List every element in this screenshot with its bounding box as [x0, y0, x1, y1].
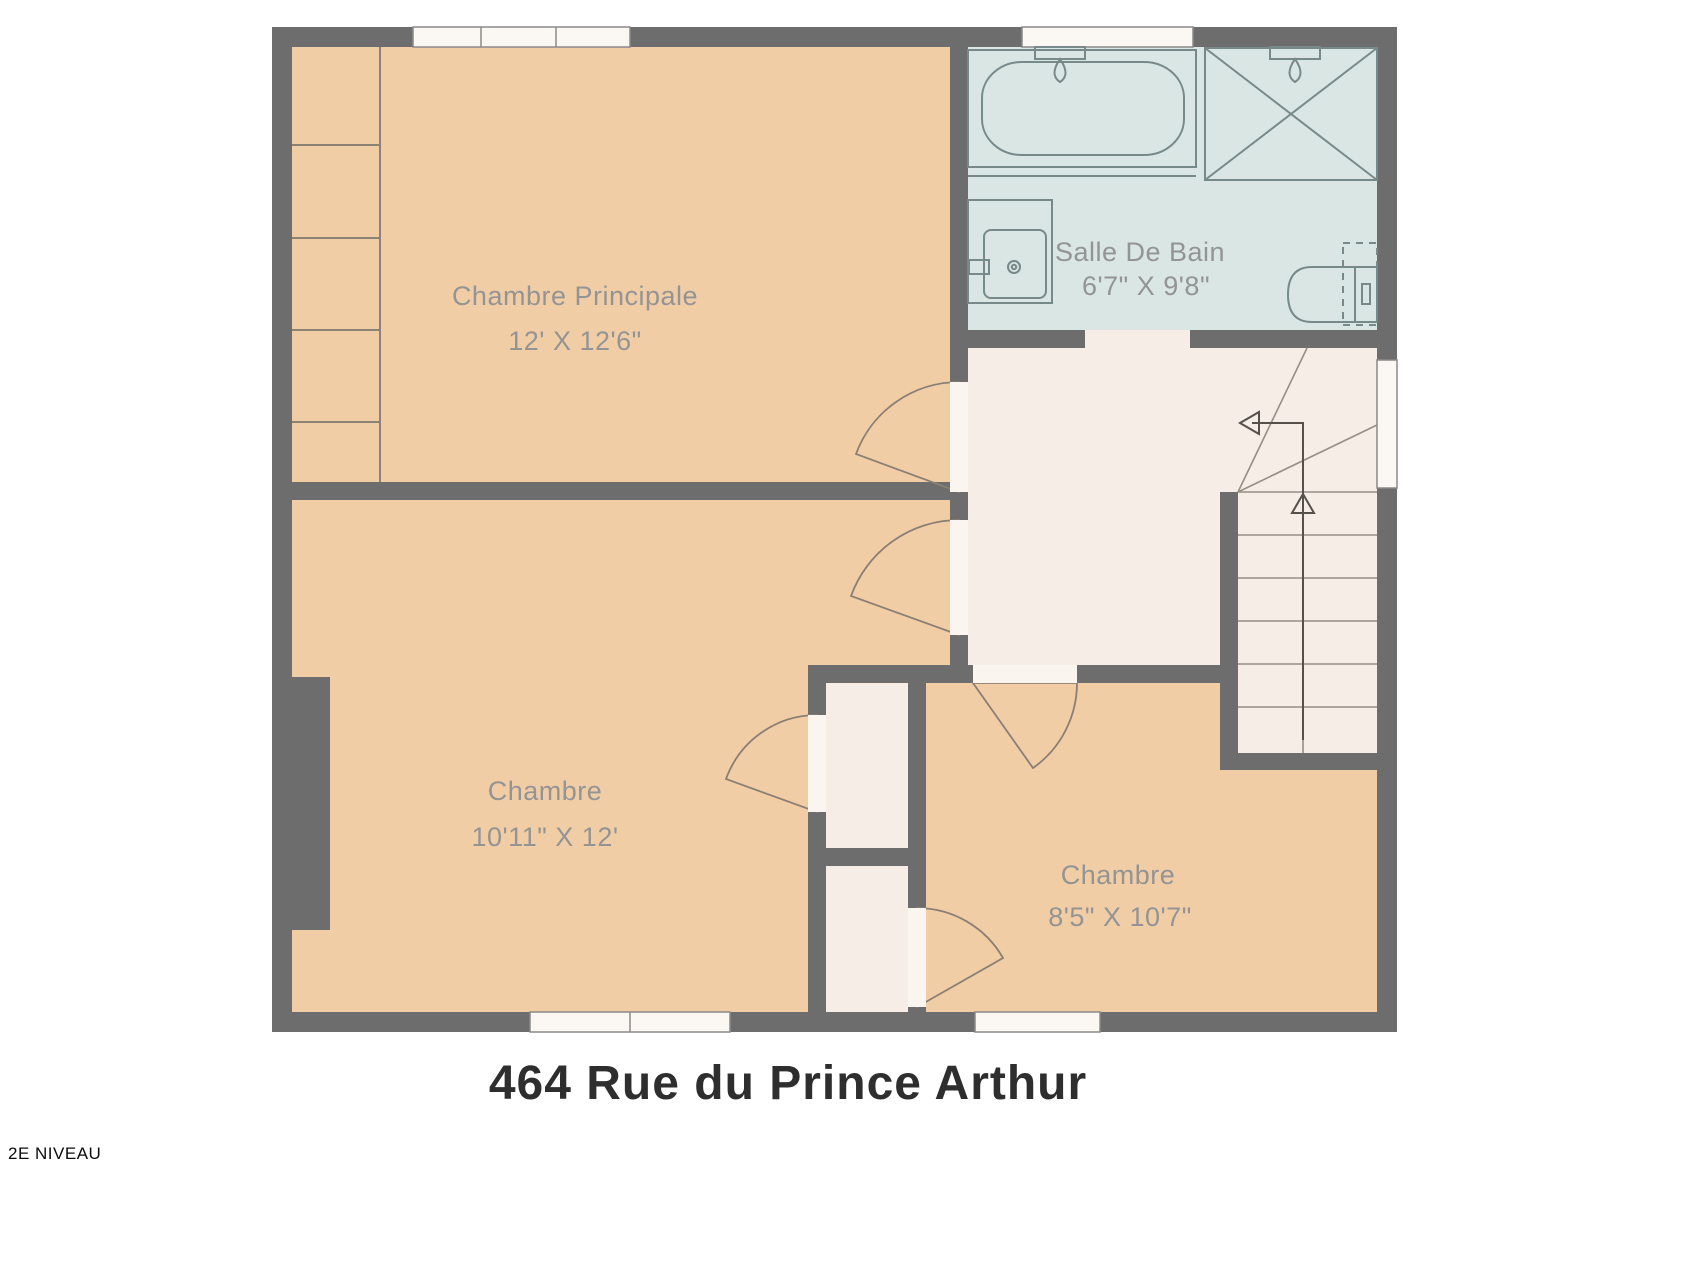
level-label: 2E NIVEAU	[8, 1144, 101, 1164]
label-chambre-right-name: Chambre	[1061, 860, 1176, 890]
label-chambre-left-name: Chambre	[488, 776, 603, 806]
label-chambre-principale-dims: 12' X 12'6"	[508, 326, 642, 356]
bathroom-doorway	[1085, 330, 1190, 348]
room-fills	[292, 47, 1377, 1012]
hallway-lower	[968, 492, 1220, 665]
floor-plan-page: Chambre Principale 12' X 12'6" Salle De …	[0, 0, 1707, 1280]
room-chambre-principale	[292, 47, 950, 482]
label-chambre-right-dims: 8'5" X 10'7"	[1048, 902, 1192, 932]
label-chambre-left-dims: 10'11" X 12'	[472, 822, 619, 852]
label-salle-de-bain-name: Salle De Bain	[1055, 237, 1225, 267]
doorways	[1085, 330, 1190, 348]
closet-corridor	[826, 683, 908, 1012]
label-salle-de-bain-dims: 6'7" X 9'8"	[1082, 271, 1210, 301]
stairwell-floor	[1238, 492, 1377, 753]
hallway-upper	[968, 348, 1377, 492]
window-master	[413, 27, 630, 47]
window-bedroom-right	[975, 1012, 1100, 1032]
label-chambre-principale-name: Chambre Principale	[452, 281, 698, 311]
window-stairs	[1377, 360, 1397, 488]
window-bath	[1022, 27, 1193, 47]
page-title: 464 Rue du Prince Arthur	[0, 1056, 1576, 1111]
